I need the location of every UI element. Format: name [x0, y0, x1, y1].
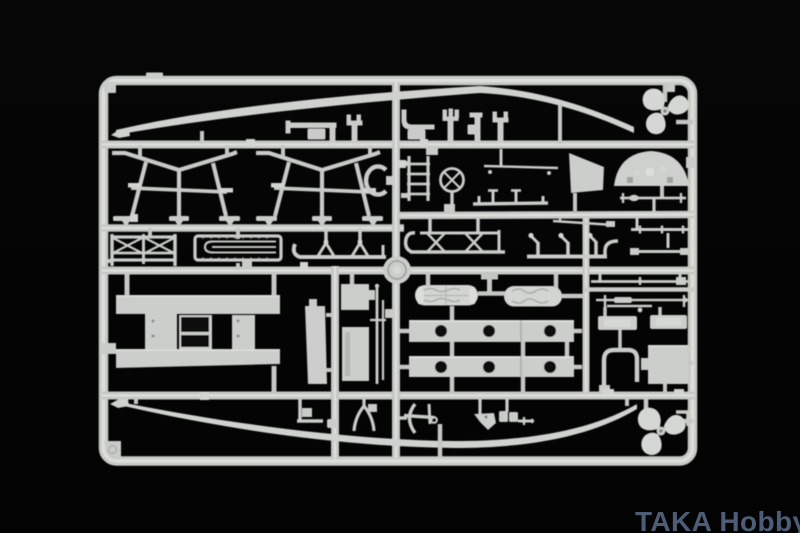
svg-text:TAKA Hobby: TAKA Hobby: [635, 506, 800, 533]
